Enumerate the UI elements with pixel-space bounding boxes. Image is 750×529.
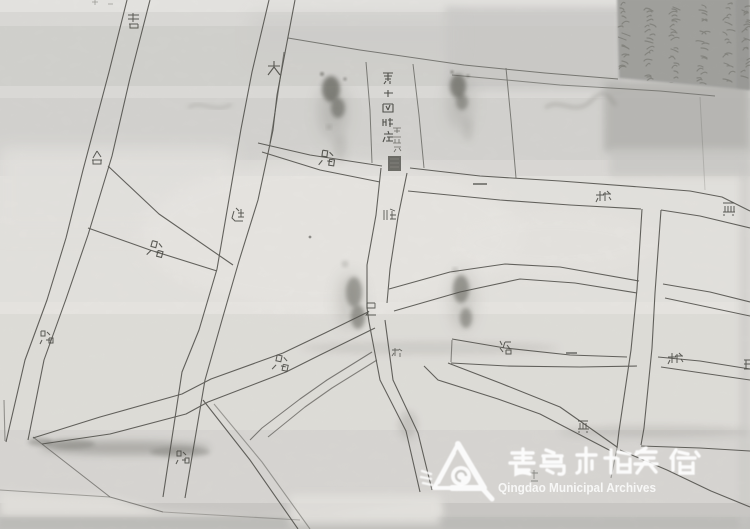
svg-text:Qingdao Municipal Archives: Qingdao Municipal Archives — [498, 480, 656, 495]
